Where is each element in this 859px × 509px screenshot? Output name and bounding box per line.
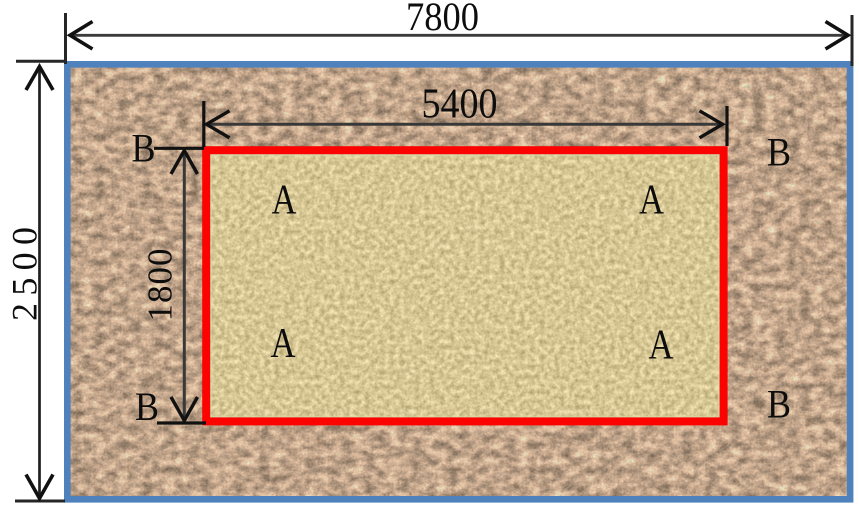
- svg-text:B: B: [767, 130, 791, 175]
- svg-text:A: A: [649, 322, 674, 369]
- svg-text:B: B: [767, 382, 791, 427]
- svg-text:5400: 5400: [422, 82, 498, 128]
- svg-text:A: A: [639, 177, 664, 224]
- svg-text:A: A: [272, 177, 297, 224]
- svg-text:B: B: [132, 126, 156, 171]
- svg-text:B: B: [135, 384, 159, 429]
- svg-text:1800: 1800: [141, 249, 180, 322]
- svg-text:7800: 7800: [406, 0, 479, 39]
- svg-text:A: A: [271, 320, 296, 367]
